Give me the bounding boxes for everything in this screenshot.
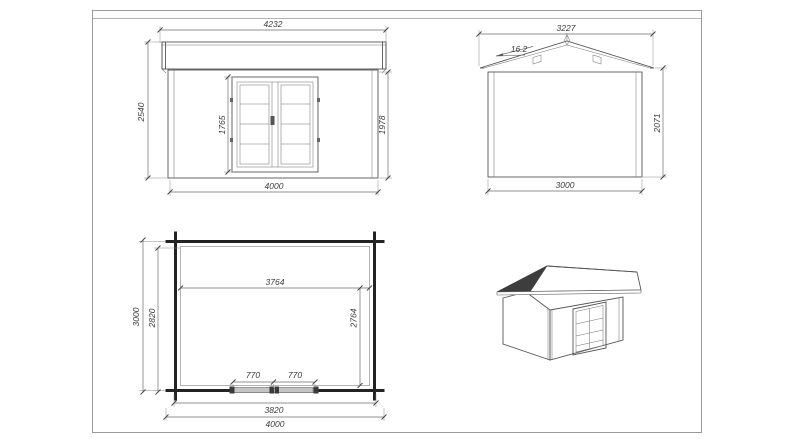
front-double-door [230, 77, 320, 172]
front-elevation-view: 4232 2540 1765 1978 [100, 12, 400, 207]
dim-plan-total-width: 4000 [266, 419, 285, 429]
plan-dim-interior-width: 3764 [178, 277, 372, 291]
front-dim-wall-width: 4000 [168, 180, 381, 196]
dim-front-wall-height: 1978 [377, 115, 387, 134]
dim-plan-wall-length: 3820 [265, 405, 284, 415]
dim-plan-door-leaf-left: 770 [246, 370, 260, 380]
iso-double-door [573, 302, 606, 355]
floor-plan-view: 3764 2764 3000 2820 [118, 222, 403, 434]
dim-side-roof-width: 3227 [557, 23, 576, 33]
dim-plan-interior-width: 3764 [266, 277, 285, 287]
iso-gable-wall [503, 292, 550, 360]
door-handle-icon [271, 116, 275, 125]
front-dim-door-height: 1765 [217, 75, 234, 175]
dim-plan-depth-inner: 2820 [147, 308, 157, 328]
dim-side-wall-height: 2071 [652, 113, 662, 133]
isometric-view [478, 248, 678, 398]
plan-door [230, 387, 319, 394]
front-dim-total-height: 2540 [136, 40, 168, 181]
iso-roof [497, 266, 641, 295]
side-roof [480, 33, 654, 68]
dim-plan-depth-total: 3000 [131, 307, 141, 326]
dim-plan-interior-depth: 2764 [349, 308, 359, 328]
drawing-canvas: 4232 2540 1765 1978 [0, 0, 794, 446]
side-roof-angle: 16.2 [496, 44, 533, 56]
front-roof [162, 42, 386, 73]
dim-side-wall-width: 3000 [556, 180, 575, 190]
dim-front-door-height: 1765 [217, 115, 227, 134]
dim-front-wall-width: 4000 [265, 181, 284, 191]
side-wall [488, 72, 642, 177]
side-elevation-view: 16.2 3227 2071 [455, 12, 705, 207]
iso-roof-shadow [497, 266, 547, 292]
front-dim-wall-height: 1978 [377, 70, 392, 181]
dim-front-roof-width: 4232 [264, 19, 283, 29]
side-dim-roof-width: 3227 [477, 23, 656, 66]
dim-side-roof-angle: 16.2 [511, 44, 528, 54]
plan-dim-wall-length: 3820 [172, 394, 379, 415]
side-dim-wall-width: 3000 [486, 179, 645, 195]
plan-dim-interior-depth: 2764 [349, 286, 363, 389]
dim-plan-door-leaf-right: 770 [288, 370, 302, 380]
front-dim-roof-width: 4232 [158, 19, 389, 43]
dim-front-total-height: 2540 [136, 102, 146, 122]
side-dim-wall-height: 2071 [643, 66, 667, 180]
